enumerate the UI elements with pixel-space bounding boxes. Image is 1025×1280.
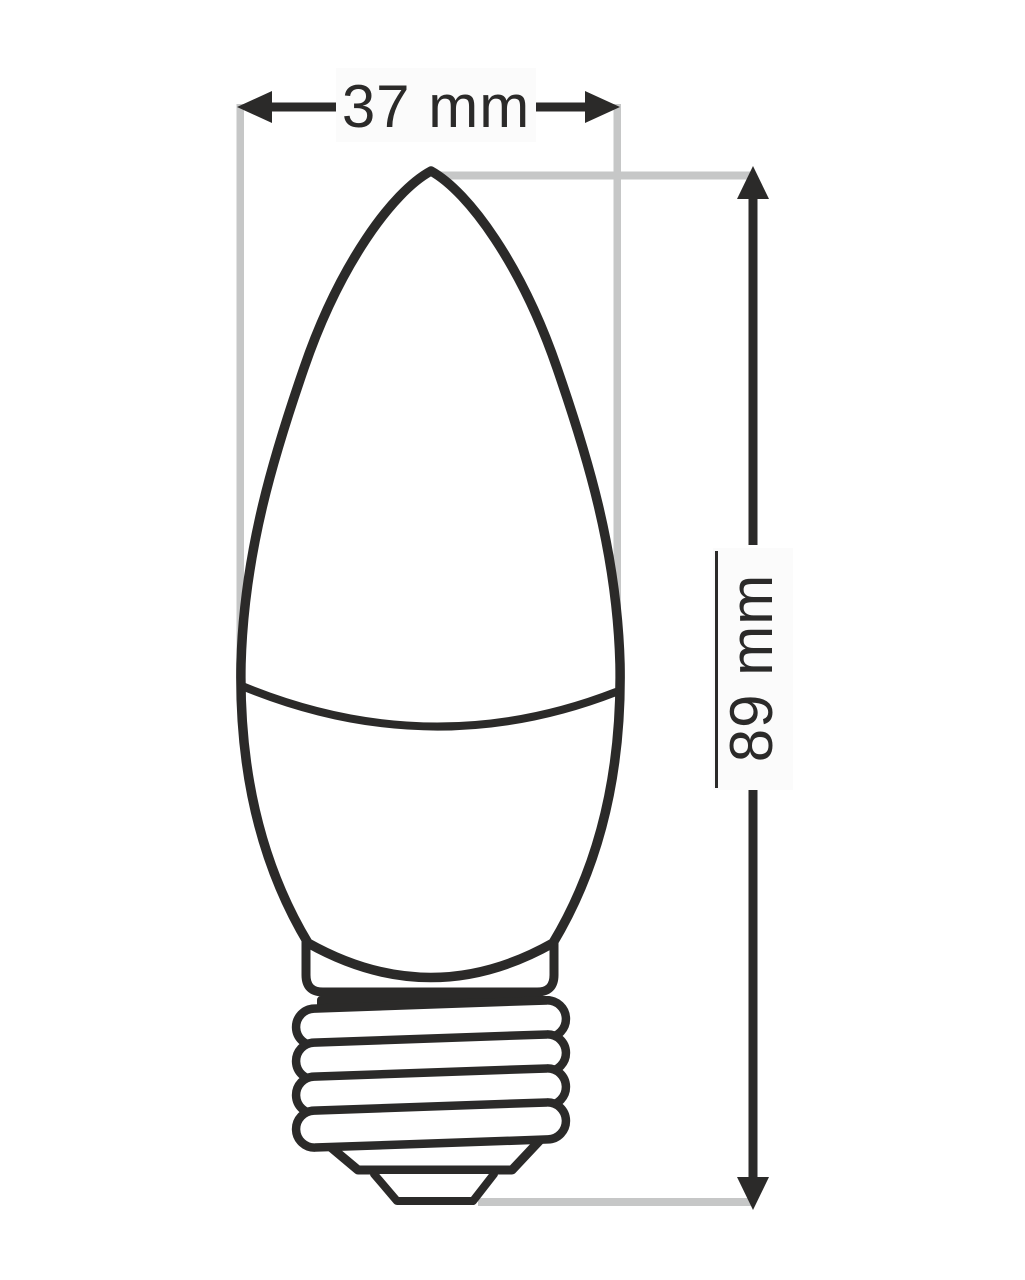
diagram-canvas: 37 mm 89 mm <box>0 0 1025 1280</box>
height-dimension-label: 89 mm <box>718 574 785 762</box>
height-extension-line-bottom <box>478 1198 753 1206</box>
bulb-dimension-diagram: 37 mm 89 mm <box>0 0 1025 1280</box>
bulb-glass-outline <box>241 171 620 978</box>
screw-thread-ring-4 <box>295 1102 566 1148</box>
height-dimension-shaft-bottom <box>749 789 758 1181</box>
screw-base-contact-tip <box>374 1174 494 1201</box>
width-dimension-shaft-left <box>264 103 340 112</box>
width-dimension-shaft-right <box>532 103 587 112</box>
width-dimension-label: 37 mm <box>342 73 530 140</box>
height-dimension-shaft-top <box>749 194 758 545</box>
height-extension-line-top <box>433 172 753 180</box>
